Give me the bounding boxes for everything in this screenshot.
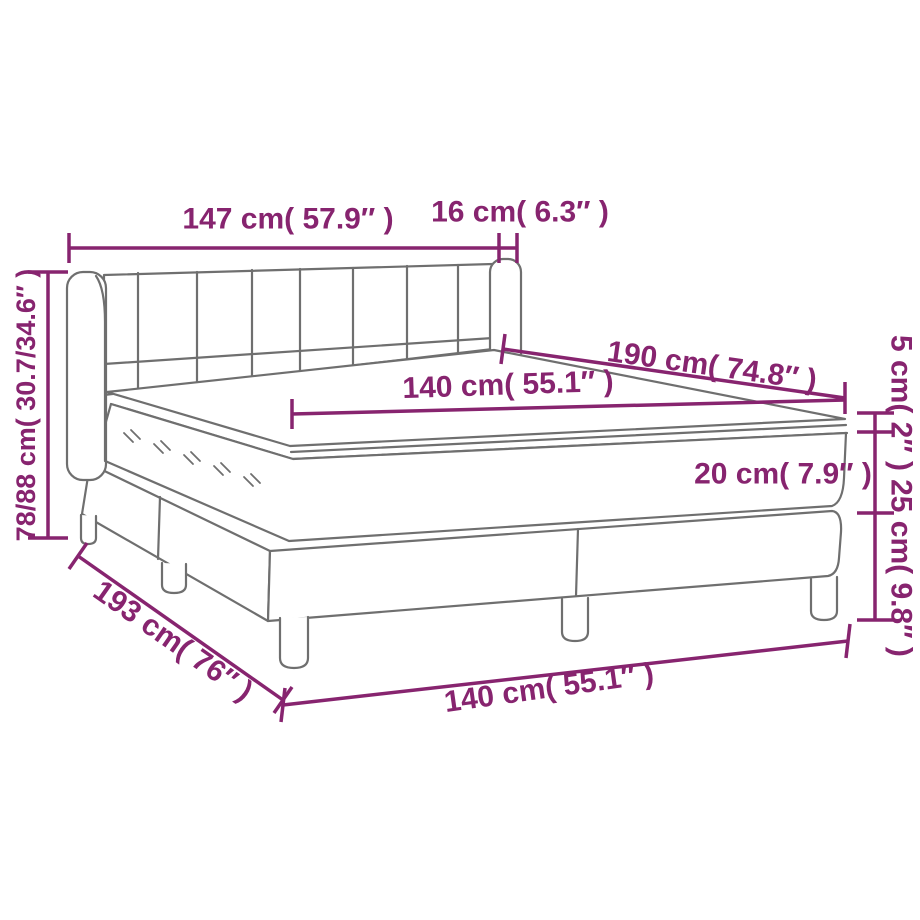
bed-leg [280, 617, 308, 668]
label-base-height: 25 cm( 9.8″ ) [885, 479, 918, 657]
bed-dimension-diagram: 147 cm( 57.9″ ) 16 cm( 6.3″ ) 190 cm( 74… [0, 0, 920, 920]
dim-tick [69, 543, 87, 569]
left-post-body [67, 272, 106, 480]
bed-leg [562, 598, 588, 641]
dim-tick [846, 624, 850, 658]
dim-tick [281, 688, 285, 722]
bed-leg [162, 563, 186, 593]
label-topper-thickness: 5 cm( 2″ ) [885, 335, 918, 471]
diagram-canvas: 147 cm( 57.9″ ) 16 cm( 6.3″ ) 190 cm( 74… [0, 0, 920, 920]
headboard-left-post [67, 272, 106, 480]
label-mattress-thickness: 20 cm( 7.9″ ) [694, 458, 872, 491]
label-headboard-width: 147 cm( 57.9″ ) [182, 203, 393, 236]
label-side-depth: 16 cm( 6.3″ ) [431, 196, 609, 229]
dim-headboard-width-and-side [69, 233, 517, 263]
bed-leg [811, 577, 837, 620]
bed-leg [81, 515, 96, 544]
label-overall-height: 78/88 cm( 30.7/34.6″ ) [11, 269, 41, 542]
label-base-width: 140 cm( 55.1″ ) [442, 657, 656, 719]
